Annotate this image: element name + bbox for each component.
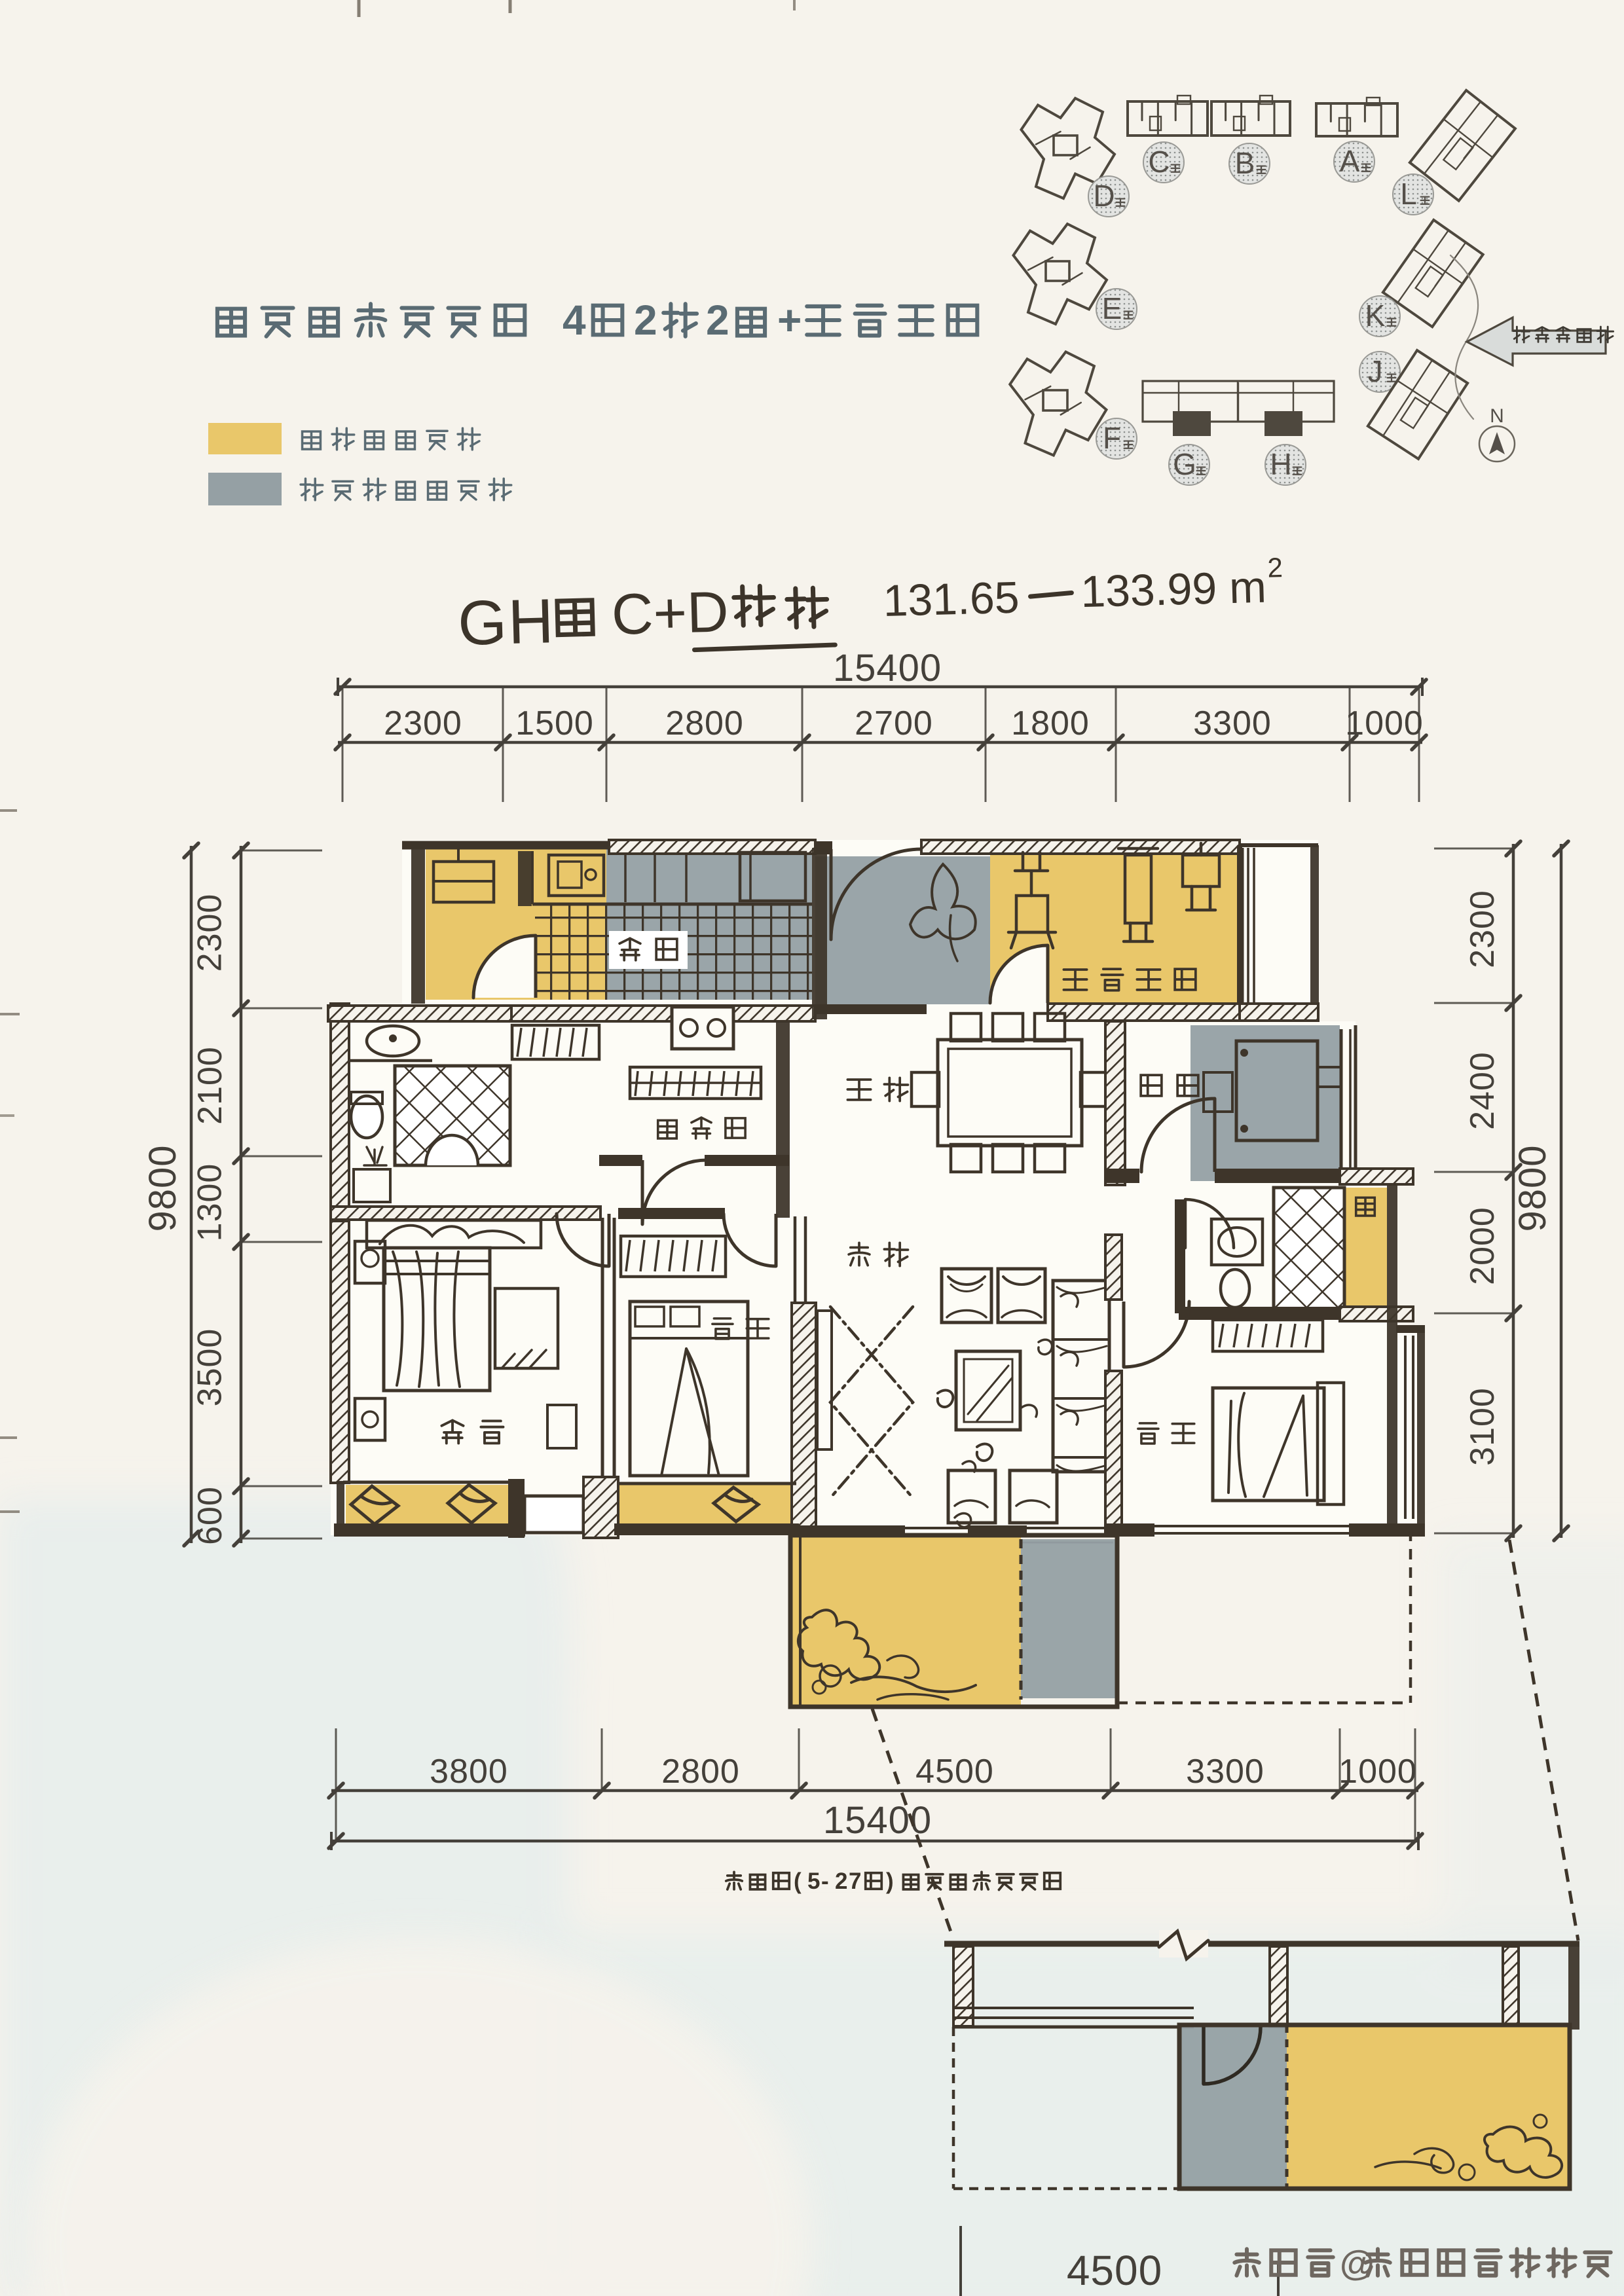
svg-text:2300: 2300 bbox=[191, 894, 229, 972]
svg-text:4500: 4500 bbox=[1067, 2247, 1162, 2294]
svg-text:C: C bbox=[1148, 145, 1170, 179]
svg-text:L: L bbox=[1400, 177, 1417, 211]
svg-text:-: - bbox=[821, 1868, 829, 1894]
svg-text:1800: 1800 bbox=[1011, 704, 1090, 742]
svg-text:2: 2 bbox=[634, 297, 657, 344]
svg-text:2400: 2400 bbox=[1464, 1051, 1502, 1130]
svg-text:1300: 1300 bbox=[191, 1163, 229, 1242]
svg-text:2000: 2000 bbox=[1464, 1207, 1502, 1285]
svg-text:A: A bbox=[1340, 144, 1360, 178]
svg-text:1500: 1500 bbox=[515, 704, 594, 742]
svg-text:4500: 4500 bbox=[915, 1753, 994, 1791]
svg-text:J: J bbox=[1368, 354, 1383, 388]
svg-text:(: ( bbox=[794, 1868, 802, 1894]
svg-text:2: 2 bbox=[1267, 552, 1283, 583]
svg-text:K: K bbox=[1365, 299, 1386, 333]
svg-text:2300: 2300 bbox=[384, 704, 462, 742]
svg-text:131.65: 131.65 bbox=[883, 573, 1020, 626]
svg-text:): ) bbox=[886, 1868, 894, 1894]
svg-text:5: 5 bbox=[807, 1868, 820, 1894]
svg-text:2300: 2300 bbox=[1464, 890, 1502, 968]
svg-text:2100: 2100 bbox=[191, 1046, 229, 1125]
svg-text:D: D bbox=[1093, 179, 1115, 213]
svg-text:N: N bbox=[1490, 405, 1504, 427]
svg-text:3300: 3300 bbox=[1193, 704, 1272, 742]
svg-text:2: 2 bbox=[706, 297, 729, 344]
svg-text:F: F bbox=[1103, 421, 1121, 455]
svg-text:3100: 3100 bbox=[1464, 1387, 1502, 1466]
svg-text:G: G bbox=[1173, 447, 1196, 481]
svg-text:3300: 3300 bbox=[1186, 1753, 1264, 1791]
svg-text:4: 4 bbox=[563, 297, 586, 344]
svg-text:B: B bbox=[1235, 146, 1255, 180]
svg-text:7: 7 bbox=[849, 1868, 861, 1894]
svg-text:9800: 9800 bbox=[1511, 1144, 1554, 1231]
svg-text:E: E bbox=[1102, 291, 1122, 325]
svg-text:2: 2 bbox=[835, 1868, 847, 1894]
svg-text:+: + bbox=[777, 297, 802, 344]
svg-text:C+D: C+D bbox=[611, 579, 729, 647]
svg-text:3800: 3800 bbox=[430, 1753, 508, 1791]
svg-text:2800: 2800 bbox=[661, 1753, 740, 1791]
svg-text:133.99 m: 133.99 m bbox=[1080, 562, 1266, 617]
svg-text:2700: 2700 bbox=[855, 704, 933, 742]
svg-text:2800: 2800 bbox=[665, 704, 744, 742]
svg-text:9800: 9800 bbox=[141, 1144, 184, 1231]
svg-text:15400: 15400 bbox=[833, 647, 942, 689]
svg-text:1000: 1000 bbox=[1345, 704, 1424, 742]
svg-text:GH: GH bbox=[457, 586, 556, 659]
svg-text:3500: 3500 bbox=[191, 1328, 229, 1407]
svg-text:H: H bbox=[1270, 447, 1291, 481]
svg-text:1000: 1000 bbox=[1338, 1753, 1417, 1791]
svg-text:600: 600 bbox=[191, 1486, 229, 1545]
